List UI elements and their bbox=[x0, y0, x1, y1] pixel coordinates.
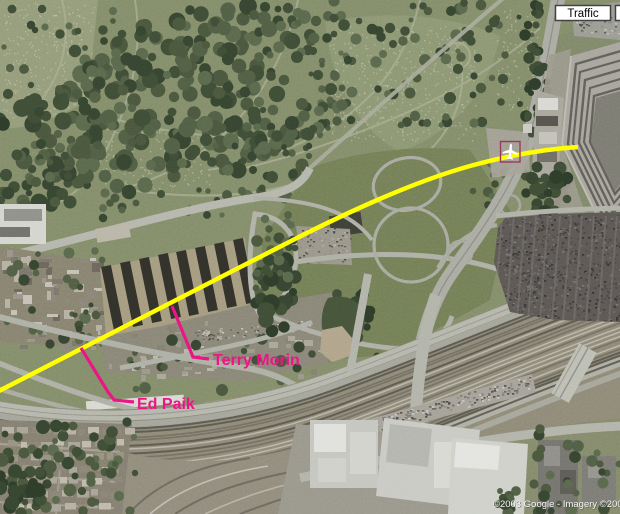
svg-text:©2003 Google - Imagery ©2004: ©2003 Google - Imagery ©2004 bbox=[493, 499, 620, 510]
